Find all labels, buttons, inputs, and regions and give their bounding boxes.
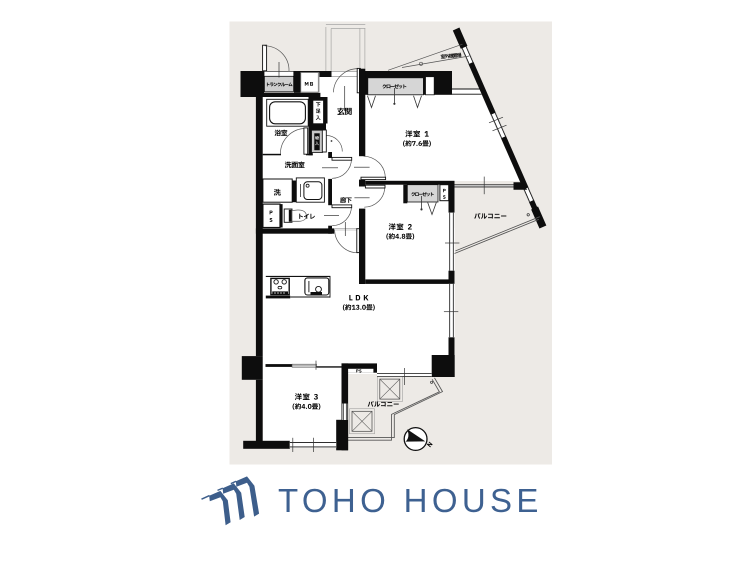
- svg-text:TOHO HOUSE: TOHO HOUSE: [278, 482, 543, 519]
